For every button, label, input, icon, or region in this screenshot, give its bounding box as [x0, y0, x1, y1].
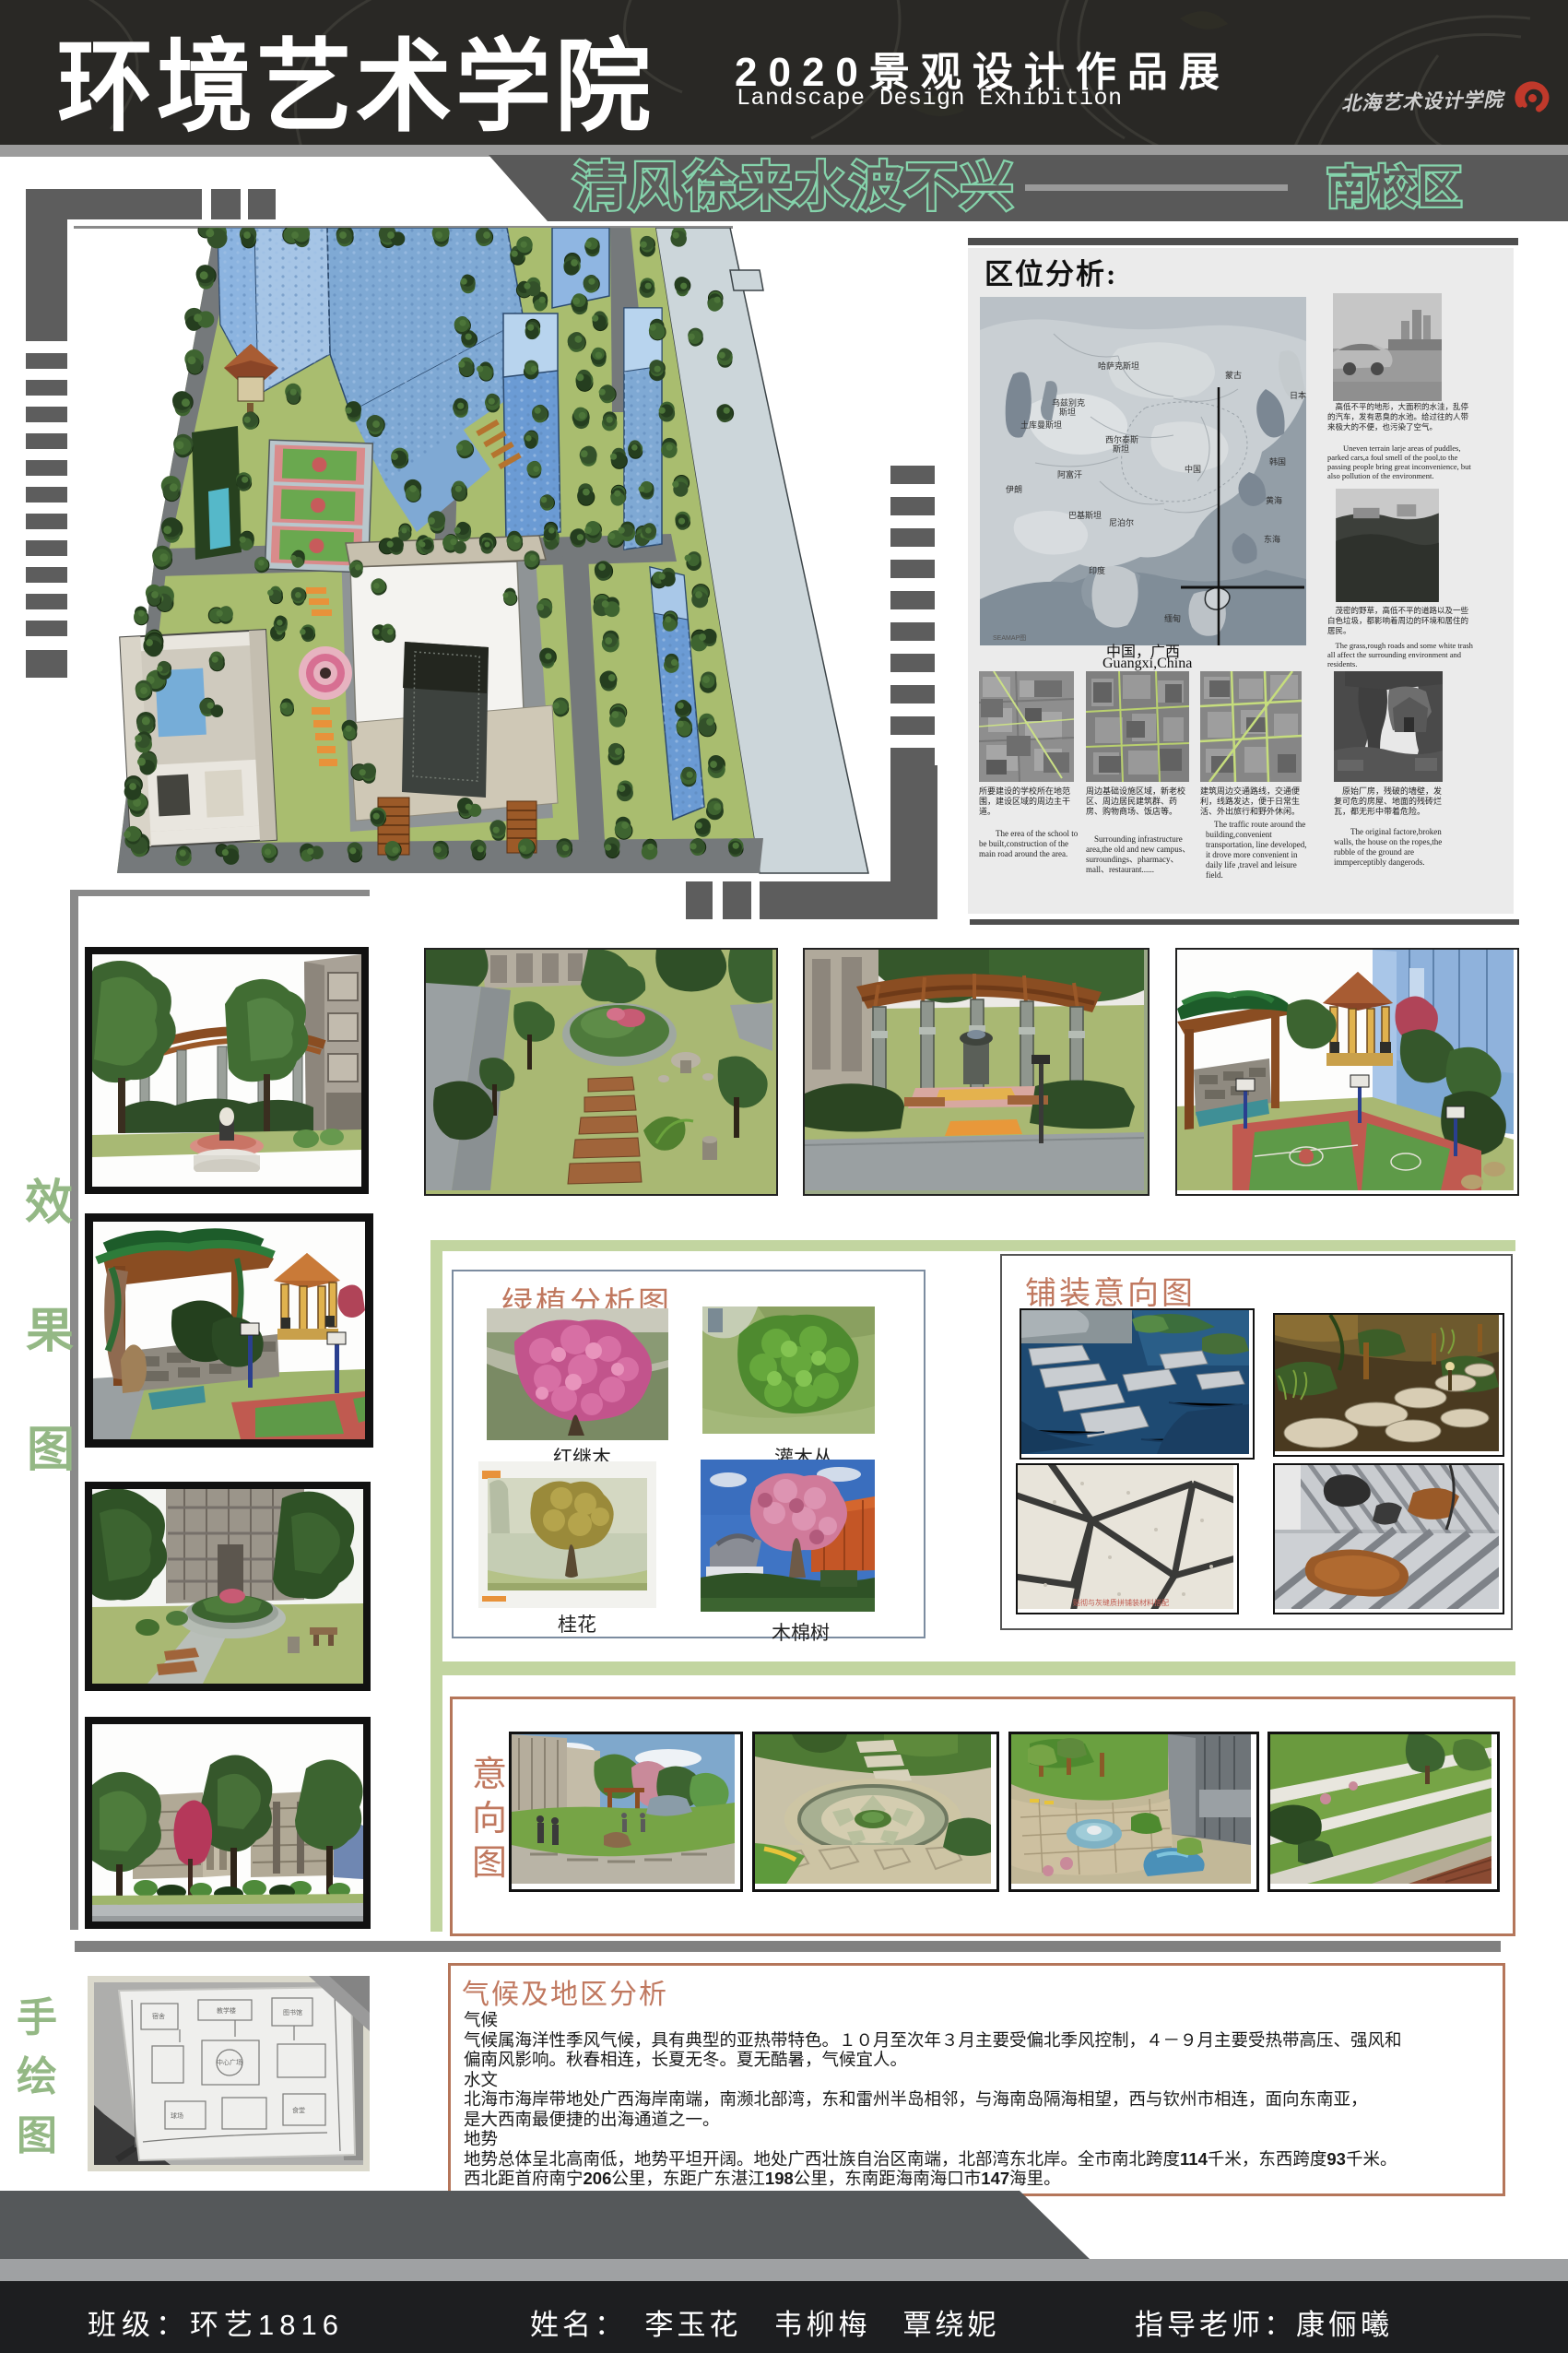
svg-text:伊朗: 伊朗 [1006, 484, 1022, 494]
svg-text:南校区: 南校区 [1326, 163, 1462, 213]
svg-text:印度: 印度 [1089, 565, 1105, 575]
svg-text:中心广场: 中心广场 [217, 2058, 242, 2066]
svg-text:贴彻与灰缝质拼铺装材料搭配: 贴彻与灰缝质拼铺装材料搭配 [1073, 1598, 1169, 1607]
svg-text:球场: 球场 [171, 2111, 183, 2120]
svg-text:日本: 日本 [1290, 390, 1306, 400]
svg-text:清风徐来水波不兴: 清风徐来水波不兴 [573, 158, 1016, 217]
svg-text:阿富汗: 阿富汗 [1057, 469, 1082, 479]
svg-text:韩国: 韩国 [1269, 456, 1286, 467]
svg-text:宿舍: 宿舍 [152, 2012, 165, 2020]
svg-text:缅甸: 缅甸 [1164, 613, 1181, 623]
svg-text:中国: 中国 [1185, 464, 1201, 474]
svg-text:教学楼: 教学楼 [217, 2006, 236, 2015]
svg-text:哈萨克斯坦: 哈萨克斯坦 [1098, 361, 1139, 371]
svg-text:蒙古: 蒙古 [1225, 370, 1242, 380]
svg-text:SEAMAP图: SEAMAP图 [993, 634, 1026, 642]
svg-text:尼泊尔: 尼泊尔 [1109, 517, 1134, 527]
svg-text:土库曼斯坦: 土库曼斯坦 [1020, 420, 1062, 430]
svg-text:图书馆: 图书馆 [283, 2008, 302, 2016]
svg-text:东海: 东海 [1264, 534, 1280, 544]
svg-text:巴基斯坦: 巴基斯坦 [1068, 510, 1102, 520]
svg-text:黄海: 黄海 [1266, 495, 1282, 505]
svg-text:食堂: 食堂 [292, 2106, 305, 2114]
